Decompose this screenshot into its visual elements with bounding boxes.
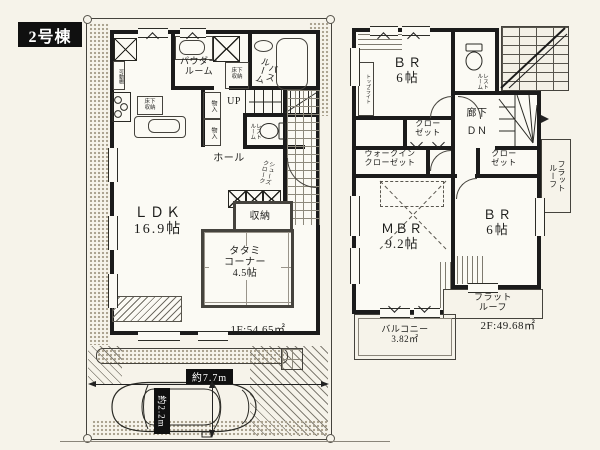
window: [468, 283, 498, 293]
ceiling-dashed-x: [380, 181, 446, 249]
movable-shelf-box: 可動棚: [113, 61, 125, 90]
arrow-down-icon: [209, 430, 215, 438]
window: [535, 198, 545, 236]
building-title: 2号棟: [18, 22, 82, 47]
bedroom-top-label: ＢＲ 6帖: [382, 56, 434, 85]
wall: [352, 174, 541, 178]
utility-box: [281, 348, 303, 370]
hall-label: ホール: [206, 153, 252, 164]
flat-roof-bottom-box: フラット ルーフ: [443, 289, 543, 319]
corridor-label: 廊下: [459, 108, 495, 119]
window: [108, 274, 118, 308]
walk-in-closet-label: ウォークイン クローゼット: [352, 150, 428, 168]
toilet-icon-2f: [461, 42, 487, 72]
tatami-corner-room: タタミ コーナー 4.5帖: [201, 229, 294, 308]
flat-roof-side-label: フラット ルーフ: [547, 144, 565, 208]
kitchen-sink: [148, 119, 180, 133]
powder-room-label: パウダー ルーム: [172, 56, 226, 76]
arrow-right-icon: [321, 381, 329, 387]
closet-small-b: 物入: [203, 119, 221, 146]
balcony-label: バルコニー 3.82㎡: [365, 324, 445, 344]
toilet-icon-1f: [259, 119, 287, 143]
skylight-label: トップライト: [362, 65, 370, 113]
underfloor-storage-powder-label: 床下 収納: [227, 68, 247, 80]
window: [350, 248, 360, 284]
flat-roof-side-box: フラット ルーフ: [541, 139, 571, 213]
window: [108, 148, 118, 182]
underfloor-storage-kitchen-box: 床下 収納: [137, 96, 163, 115]
road-line: [60, 441, 390, 442]
planting-strip: [96, 348, 288, 364]
stairs-up-label: UP: [221, 96, 247, 107]
storage-label: 収納: [236, 211, 284, 222]
br2-corner-hatch: [457, 256, 487, 284]
stairs-down-2f: [499, 95, 537, 146]
wall: [495, 28, 499, 95]
window: [350, 48, 360, 86]
skylight-box: トップライト: [358, 62, 374, 116]
parking-depth-text: 約2.2m: [156, 395, 169, 427]
floor-plan-canvas: 2号棟 可動棚 床下 収納 床下 収納 パウダー ルーム バス ルーム: [0, 0, 600, 450]
bathtub: [276, 38, 308, 90]
stove-icon: [112, 92, 131, 122]
car-top-view: [102, 376, 264, 438]
wood-deck: [112, 296, 182, 322]
restroom-2f-label: レスト ルーム: [463, 70, 487, 92]
window: [350, 196, 360, 236]
stairs-arrow-icon: [541, 115, 549, 123]
movable-shelf-label: 可動棚: [114, 63, 123, 89]
underfloor-storage-kitchen-label: 床下 収納: [139, 99, 161, 111]
area-2f-label: 2F:49.68㎡: [472, 320, 544, 332]
bedroom-right-label: ＢＲ 6帖: [472, 208, 524, 237]
dimension-line-vertical: [212, 386, 213, 432]
closet-top-label: クロー ゼット: [405, 120, 451, 138]
window: [138, 331, 180, 341]
tatami-corner-label: タタミ コーナー 4.5帖: [209, 246, 281, 280]
arrow-up-icon: [209, 380, 215, 388]
closet-small-b-label: 物入: [208, 122, 216, 144]
roof-diagonal-lines: [501, 26, 567, 89]
closet-right-label: クロー ゼット: [480, 150, 528, 168]
refrigerator-space-box: [114, 38, 137, 61]
area-1f-label: 1F:54.65㎡: [226, 324, 290, 336]
restroom-1f-label: レスト ルーム: [245, 116, 260, 146]
stairs-down-label: ＤＮ: [464, 126, 490, 137]
flat-roof-bottom-label: フラット ルーフ: [454, 292, 532, 312]
closet-small-a: 物入: [203, 92, 221, 119]
arrow-left-icon: [88, 381, 96, 387]
balcony-box: バルコニー 3.82㎡: [354, 314, 456, 360]
ldk-label: ＬＤＫ 16.9帖: [124, 206, 192, 237]
window: [198, 331, 228, 341]
stipple-band-left: [89, 23, 110, 345]
closet-small-a-label: 物入: [208, 95, 216, 117]
window: [108, 216, 118, 250]
parking-depth-label: 約2.2m: [154, 388, 170, 434]
